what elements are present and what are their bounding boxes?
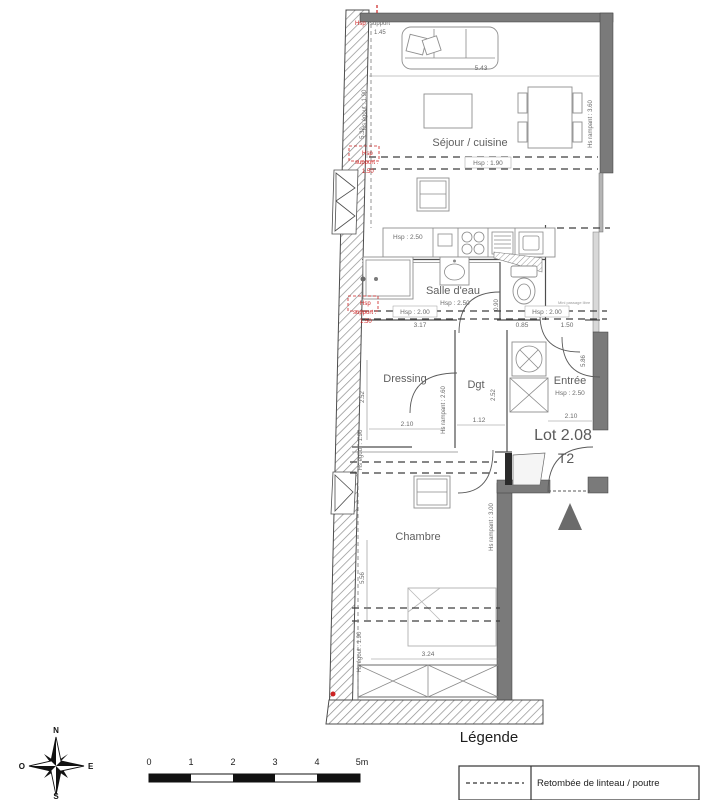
sejour-wardrobe-icon [417, 178, 449, 211]
scale-4: 4 [314, 757, 319, 767]
room-chambre-label: Chambre [395, 531, 440, 543]
dim-wc-w: 0.90 [494, 299, 500, 311]
washbasin-icon [440, 257, 469, 285]
entry-duct [513, 453, 545, 485]
dim-dgt-h: 2.52 [491, 389, 497, 401]
chambre-right-wall [497, 483, 512, 702]
coffee-table-icon [424, 94, 472, 128]
height-egout-top: Hs égout : 1.90 [362, 89, 368, 130]
kitchen-counter: Hsp : 2.50 [383, 228, 555, 257]
floor-plan-drawing: Hsp : 2.50 [0, 0, 701, 800]
dim-chambre-h: 5.56 [360, 572, 366, 584]
room-dgt-label: Dgt [467, 379, 484, 391]
dimension-labels: 5.43 5.32 3.17 0.85 1.50 0.90 2.52 2.10 … [360, 65, 591, 658]
water-heater-icon [510, 378, 548, 412]
beam-label-bath-right: Hsp : 2.00 [532, 309, 562, 316]
sejour-furniture [402, 27, 582, 211]
dim-chambre-w: 3.24 [422, 651, 435, 658]
support-low-value: 1.50 [360, 319, 372, 325]
scale-2: 2 [230, 757, 235, 767]
chambre-window-icon [358, 665, 498, 697]
support-low-word: support : [353, 310, 377, 316]
top-wall [360, 13, 613, 22]
left-wall-window-bottom [331, 472, 356, 514]
scale-bar: 0 1 2 3 4 5m [146, 757, 368, 782]
dim-sejour-w: 5.43 [475, 65, 488, 72]
compass-west-label: O [19, 762, 25, 771]
support-mid-word: support : [355, 160, 379, 166]
dim-bath-w: 3.17 [414, 322, 427, 329]
washer-icon [512, 342, 546, 376]
room-dressing-label: Dressing [383, 373, 426, 385]
chambre-door [458, 450, 493, 493]
dim-wc-b: 1.50 [561, 322, 574, 329]
dining-table-icon [518, 87, 582, 148]
beam-label-bath-left: Hsp : 2.00 [400, 309, 430, 316]
shower-icon [361, 257, 414, 299]
entry-side-wall [588, 477, 608, 493]
entree-height: Hsp : 2.50 [555, 390, 585, 397]
scale-1: 1 [188, 757, 193, 767]
right-upper-wall [600, 13, 613, 173]
left-wall-window-top [332, 170, 358, 234]
support-low-hsp: Hsp [360, 301, 371, 307]
salle-eau-door [459, 292, 500, 333]
note-passage: Mini passage libre [558, 300, 591, 305]
compass-north-label: N [53, 726, 59, 735]
height-egout-mid: Hs égout : 1.90 [358, 429, 364, 470]
dim-dgt-w: 1.12 [473, 417, 486, 424]
kitchen-height-label: Hsp : 2.50 [393, 234, 423, 241]
room-entree-label: Entrée [554, 375, 586, 387]
salle-eau-height: Hsp : 2.50 [440, 300, 470, 307]
dim-dressing-h: 2.52 [360, 391, 366, 403]
height-egout-bottom: Hs égout : 1.90 [357, 631, 363, 672]
door-jamb [505, 453, 512, 485]
scale-0: 0 [146, 757, 151, 767]
compass-rose: N E S O [19, 726, 94, 800]
chambre-furniture [358, 476, 498, 697]
support-top-value: 1.45 [374, 30, 386, 36]
scale-3: 3 [272, 757, 277, 767]
entree-right-wall [593, 332, 608, 430]
height-rampant-chambre: Hs rampant : 3.00 [489, 502, 495, 550]
support-mid-hsp: Hsp [362, 151, 373, 157]
right-wall-thin [599, 173, 603, 232]
support-mid-value: 1.50 [362, 169, 374, 175]
dim-entree-h: 5.86 [581, 355, 587, 367]
bottom-wall [326, 700, 543, 724]
dim-entree-w: 2.10 [565, 413, 578, 420]
toilet-icon [511, 266, 537, 304]
right-wall-mid [593, 232, 599, 332]
entrance-arrow-icon [558, 503, 582, 530]
lot-number: Lot 2.08 [534, 427, 592, 444]
room-salle-eau-label: Salle d'eau [426, 285, 480, 297]
scale-5m: 5m [356, 757, 369, 767]
chambre-dresser-icon [414, 476, 450, 508]
legend-title: Légende [460, 729, 518, 746]
sofa-icon [402, 27, 498, 69]
dim-wc-a: 0.85 [516, 322, 529, 329]
beam-label-sejour: Hsp : 1.90 [473, 160, 503, 167]
dim-dressing-w: 2.10 [401, 421, 414, 428]
lot-type: T2 [558, 450, 575, 466]
height-rampant-mid: Hs rampant : 2.60 [441, 385, 447, 433]
height-rampant-right: Hs rampant : 3.60 [588, 99, 594, 147]
compass-south-label: S [53, 792, 59, 800]
room-sejour-label: Séjour / cuisine [432, 137, 507, 149]
support-top-hsp: Hsp [355, 21, 366, 27]
legend-item-label: Retombée de linteau / poutre [537, 778, 660, 789]
compass-east-label: E [88, 762, 94, 771]
floor-plan-page: Hsp : 2.50 [0, 0, 701, 800]
entree-fixtures [510, 342, 548, 412]
bed-icon [408, 588, 496, 646]
support-top-word: support [370, 21, 390, 27]
legend: Légende Retombée de linteau / poutre [459, 729, 699, 800]
